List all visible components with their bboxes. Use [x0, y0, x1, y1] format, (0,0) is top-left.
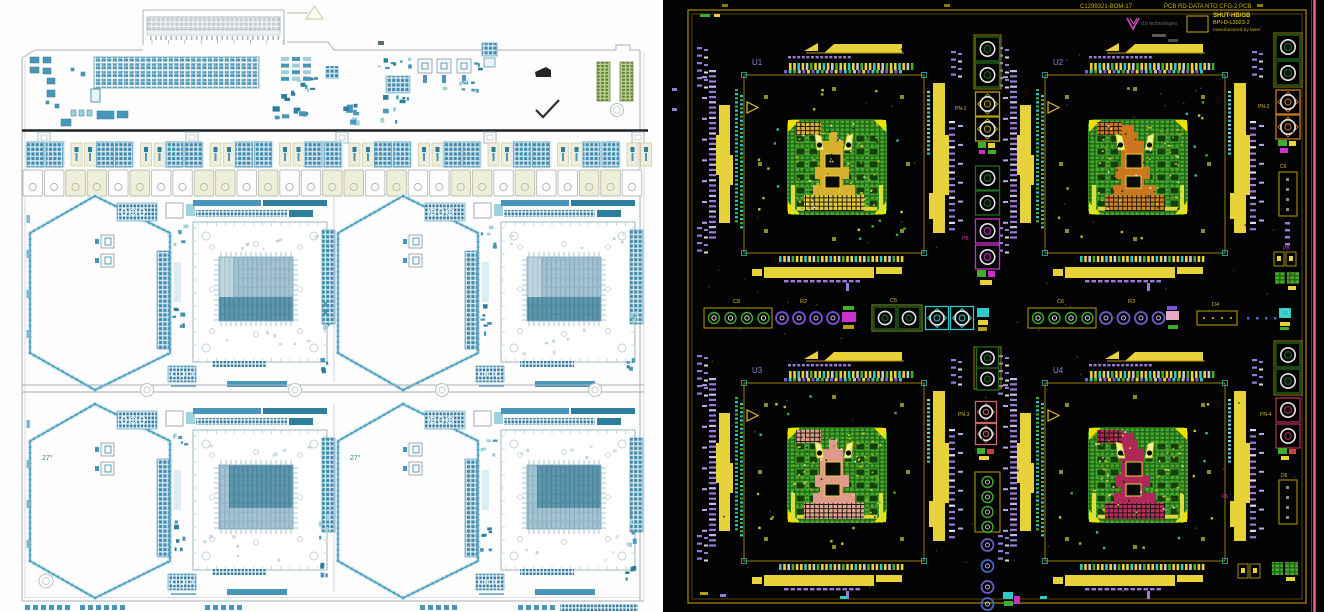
svg-text:d.b technologies: d.b technologies — [1141, 21, 1178, 27]
svg-text:C8: C8 — [733, 299, 740, 305]
svg-text:27°: 27° — [350, 454, 361, 462]
svg-text:PCB RD-DATA NTO CFG-2 PCB: PCB RD-DATA NTO CFG-2 PCB — [1164, 4, 1251, 10]
svg-text:U1: U1 — [752, 58, 763, 67]
svg-text:U4: U4 — [1053, 366, 1064, 375]
svg-text:PN-4: PN-4 — [1260, 412, 1272, 418]
svg-text:SHUT-HB/GB: SHUT-HB/GB — [1213, 13, 1251, 19]
svg-text:U3: U3 — [752, 366, 763, 375]
svg-text:C6: C6 — [1280, 164, 1287, 170]
svg-text:PN-1: PN-1 — [955, 106, 967, 112]
svg-text:D4: D4 — [1212, 302, 1219, 308]
svg-text:PB: PB — [962, 236, 969, 242]
svg-text:27°: 27° — [42, 454, 53, 462]
svg-text:manufactured by laser: manufactured by laser — [1213, 27, 1261, 33]
svg-text:C6: C6 — [1057, 299, 1064, 305]
svg-text:PB: PB — [1283, 246, 1290, 252]
svg-text:U2: U2 — [1053, 58, 1064, 67]
svg-text:R2: R2 — [800, 299, 807, 305]
svg-text:PN-3: PN-3 — [958, 412, 970, 418]
svg-text:PN-2: PN-2 — [1258, 104, 1270, 110]
svg-text:BPI-D-L3023-2: BPI-D-L3023-2 — [1213, 20, 1250, 26]
svg-text:R3: R3 — [1128, 299, 1135, 305]
svg-text:C1299321-BOM-17: C1299321-BOM-17 — [1080, 4, 1133, 10]
svg-text:P6: P6 — [1222, 494, 1228, 500]
svg-text:D6: D6 — [1281, 473, 1288, 479]
svg-text:C5: C5 — [890, 298, 897, 304]
